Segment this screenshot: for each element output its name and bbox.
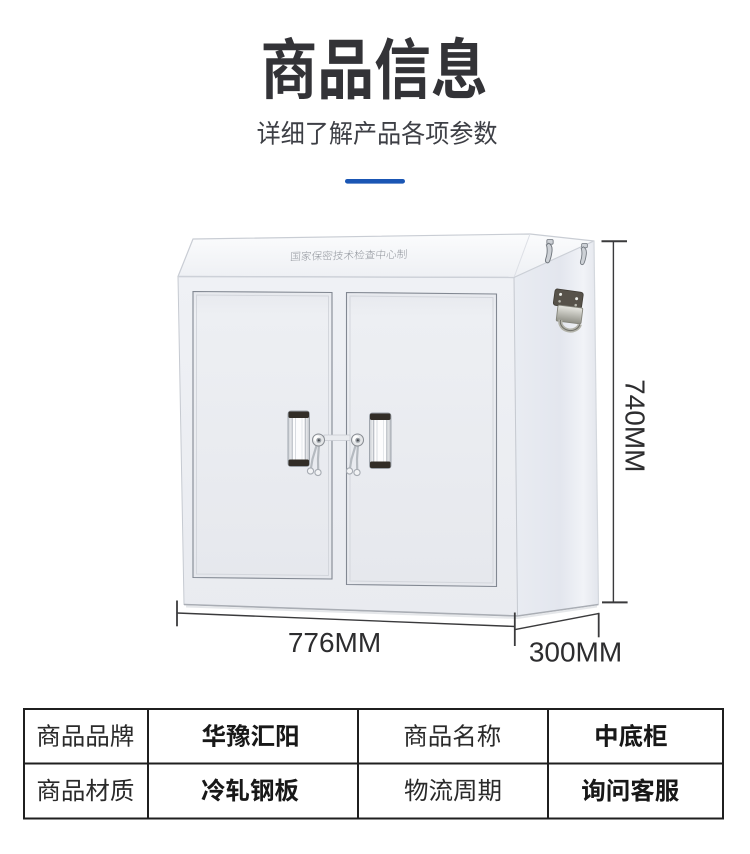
svg-text:300MM: 300MM <box>529 637 622 668</box>
svg-text:776MM: 776MM <box>288 627 381 658</box>
svg-text:740MM: 740MM <box>620 379 651 472</box>
